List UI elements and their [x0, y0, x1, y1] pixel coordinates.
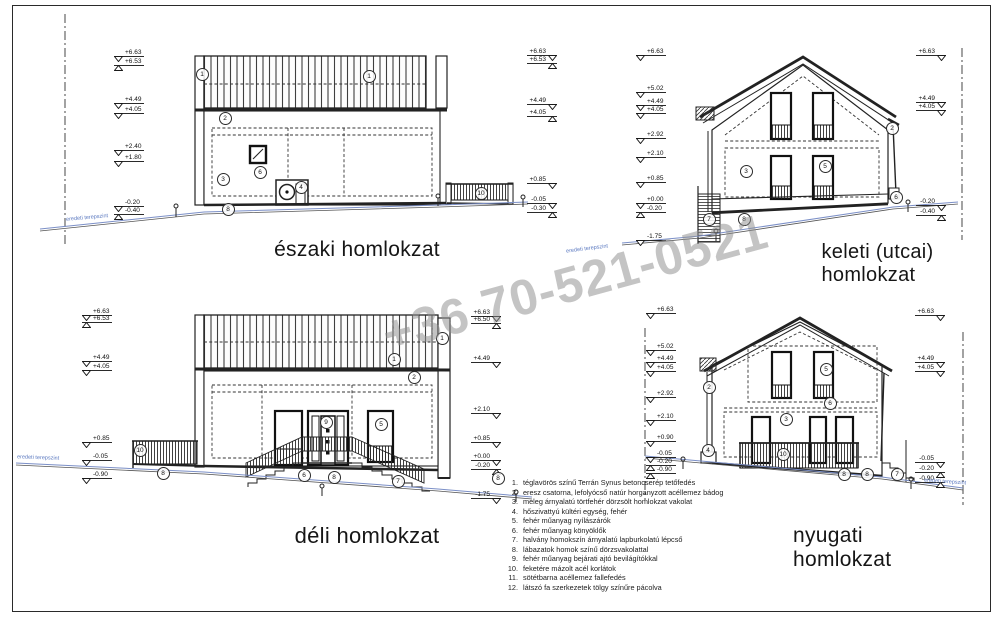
legend-item: 7.halvány homokszín árnyalatú lapburkola… — [503, 535, 723, 545]
eszaki-elevation-title: északi homlokzat — [274, 238, 440, 262]
legend-item-text: fehér műanyag bejárati ajtó bevilágítókk… — [523, 554, 658, 564]
level-triangle-icon — [936, 315, 945, 321]
level-marker: -0.20 — [916, 196, 946, 206]
level-triangle-icon — [636, 240, 645, 246]
level-marker: +4.05 — [527, 107, 557, 117]
level-value: +6.53 — [530, 56, 546, 63]
legend-item-number: 6. — [503, 526, 518, 536]
legend-item-text: fehér műanyag könyöklők — [523, 526, 606, 536]
level-value: +4.49 — [918, 355, 934, 362]
level-value: +4.05 — [93, 363, 109, 370]
level-marker: +2.10 — [636, 148, 666, 158]
level-value: -0.30 — [531, 205, 546, 212]
level-value: +6.63 — [919, 48, 935, 55]
level-marker: -1.75 — [636, 231, 666, 241]
level-value: +5.02 — [657, 343, 673, 350]
level-marker: -0.40 — [114, 205, 144, 215]
level-marker: +4.05 — [916, 101, 946, 111]
level-value: +1.80 — [125, 154, 141, 161]
level-marker: +6.53 — [114, 56, 144, 66]
level-value: +6.63 — [657, 306, 673, 313]
level-marker: -1.75 — [471, 489, 501, 499]
legend-item: 2.eresz csatorna, lefolyócső natúr horga… — [503, 488, 723, 498]
level-marker: +1.80 — [114, 152, 144, 162]
level-marker: +2.92 — [636, 129, 666, 139]
legend-item-number: 11. — [503, 573, 518, 583]
level-marker: +0.85 — [471, 433, 501, 443]
legend-item-number: 2. — [503, 488, 518, 498]
level-triangle-icon — [82, 322, 91, 328]
legend-item: 4.hőszivattyú kültéri egység, fehér — [503, 507, 723, 517]
legend-item: 1.téglavörös színű Terrán Synus betoncse… — [503, 478, 723, 488]
level-triangle-icon — [636, 138, 645, 144]
level-value: +2.10 — [647, 150, 663, 157]
level-marker: +0.90 — [646, 432, 676, 442]
keleti-elevation-title: keleti (utcai) homlokzat — [822, 241, 941, 287]
deli-elevation-drawing — [132, 315, 450, 491]
level-marker: +5.02 — [636, 83, 666, 93]
legend-item-number: 10. — [503, 564, 518, 574]
level-marker: +6.63 — [915, 306, 945, 316]
level-marker: +0.85 — [636, 173, 666, 183]
level-value: +6.50 — [474, 316, 490, 323]
level-value: +2.10 — [657, 413, 673, 420]
level-value: -0.20 — [647, 205, 662, 212]
level-triangle-icon — [646, 313, 655, 319]
level-triangle-icon — [936, 371, 945, 377]
level-marker: -0.20 — [915, 463, 945, 473]
level-value: +0.00 — [647, 196, 663, 203]
level-triangle-icon — [114, 214, 123, 220]
level-triangle-icon — [646, 371, 655, 377]
legend-item-number: 12. — [503, 583, 518, 593]
level-triangle-icon — [937, 110, 946, 116]
level-value: +0.00 — [474, 453, 490, 460]
level-triangle-icon — [492, 442, 501, 448]
level-marker: -0.30 — [527, 203, 557, 213]
level-triangle-icon — [646, 397, 655, 403]
legend-item-text: meleg árnyalatú törtfehér dörzsölt homlo… — [523, 497, 692, 507]
level-triangle-icon — [937, 215, 946, 221]
level-value: -1.75 — [647, 233, 662, 240]
legend-item-number: 8. — [503, 545, 518, 555]
level-marker: -0.05 — [82, 451, 112, 461]
level-triangle-icon — [82, 460, 91, 466]
level-marker: -0.40 — [916, 206, 946, 216]
level-marker: +2.40 — [114, 141, 144, 151]
level-marker: -0.90 — [646, 464, 676, 474]
legend-item: 9.fehér műanyag bejárati ajtó bevilágító… — [503, 554, 723, 564]
legend-item-number: 9. — [503, 554, 518, 564]
level-triangle-icon — [492, 323, 501, 329]
level-marker: +4.49 — [527, 95, 557, 105]
level-marker: -0.20 — [471, 460, 501, 470]
level-triangle-icon — [492, 469, 501, 475]
level-triangle-icon — [548, 212, 557, 218]
level-triangle-icon — [548, 116, 557, 122]
legend-item-text: hőszivattyú kültéri egység, fehér — [523, 507, 627, 517]
level-value: +4.05 — [657, 364, 673, 371]
level-triangle-icon — [636, 113, 645, 119]
level-marker: +4.49 — [471, 353, 501, 363]
level-value: -0.40 — [920, 208, 935, 215]
level-marker: +2.92 — [646, 388, 676, 398]
level-value: +0.85 — [93, 435, 109, 442]
level-value: +6.63 — [647, 48, 663, 55]
level-marker: +4.49 — [114, 94, 144, 104]
level-value: +0.85 — [474, 435, 490, 442]
legend-item-number: 1. — [503, 478, 518, 488]
legend-item-text: halvány homokszín árnyalatú lapburkolatú… — [523, 535, 682, 545]
level-value: +6.63 — [918, 308, 934, 315]
level-value: +2.92 — [657, 390, 673, 397]
level-triangle-icon — [636, 182, 645, 188]
level-value: +5.02 — [647, 85, 663, 92]
level-triangle-icon — [492, 413, 501, 419]
level-marker: -0.05 — [915, 453, 945, 463]
level-value: +4.05 — [125, 106, 141, 113]
level-triangle-icon — [492, 362, 501, 368]
legend-item: 11.sötétbarna acéllemez fallefedés — [503, 573, 723, 583]
level-triangle-icon — [114, 161, 123, 167]
level-value: -0.05 — [531, 196, 546, 203]
legend-item-number: 4. — [503, 507, 518, 517]
level-triangle-icon — [646, 441, 655, 447]
legend-item: 6.fehér műanyag könyöklők — [503, 526, 723, 536]
level-value: +4.05 — [919, 103, 935, 110]
level-triangle-icon — [82, 478, 91, 484]
level-triangle-icon — [82, 442, 91, 448]
level-marker: +4.05 — [82, 361, 112, 371]
legend-item-text: sötétbarna acéllemez fallefedés — [523, 573, 626, 583]
level-marker: -0.90 — [82, 469, 112, 479]
level-value: +4.49 — [125, 96, 141, 103]
level-value: +2.10 — [474, 406, 490, 413]
legend-item-text: feketére mázolt acél korlátok — [523, 564, 616, 574]
legend-item: 3.meleg árnyalatú törtfehér dörzsölt hom… — [503, 497, 723, 507]
level-value: -0.20 — [920, 198, 935, 205]
architectural-drawing-sheet: .ln{stroke:#222;fill:none} .dash{stroke:… — [0, 0, 1000, 619]
level-value: +2.92 — [647, 131, 663, 138]
level-triangle-icon — [636, 212, 645, 218]
level-marker: +2.10 — [646, 411, 676, 421]
level-marker: +6.63 — [916, 46, 946, 56]
level-triangle-icon — [492, 498, 501, 504]
level-marker: +4.05 — [114, 104, 144, 114]
level-marker: +4.05 — [646, 362, 676, 372]
level-triangle-icon — [636, 157, 645, 163]
level-value: +6.63 — [125, 49, 141, 56]
level-value: +0.90 — [657, 434, 673, 441]
nyugati-elevation-title: nyugati homlokzat — [793, 524, 931, 572]
level-marker: +0.85 — [527, 174, 557, 184]
legend-item: 8.lábazatok homok színű dörzsvakolattal — [503, 545, 723, 555]
legend-item-number: 3. — [503, 497, 518, 507]
level-value: +2.40 — [125, 143, 141, 150]
level-value: -0.90 — [93, 471, 108, 478]
level-value: +4.49 — [657, 355, 673, 362]
level-marker: +6.53 — [527, 54, 557, 64]
deli-elevation-title: déli homlokzat — [295, 523, 440, 549]
level-value: +4.05 — [647, 106, 663, 113]
level-value: +0.85 — [530, 176, 546, 183]
level-value: +6.53 — [125, 58, 141, 65]
level-value: +0.85 — [647, 175, 663, 182]
materials-legend: 1.téglavörös színű Terrán Synus betoncse… — [503, 478, 723, 593]
level-triangle-icon — [114, 113, 123, 119]
level-value: -0.20 — [919, 465, 934, 472]
level-value: -0.20 — [475, 462, 490, 469]
level-value: -0.90 — [657, 466, 672, 473]
legend-item-text: látszó fa szerkezetek tölgy színűre páco… — [523, 583, 662, 593]
legend-item: 5.fehér műanyag nyílászárók — [503, 516, 723, 526]
legend-item-text: lábazatok homok színű dörzsvakolattal — [523, 545, 648, 555]
level-triangle-icon — [548, 63, 557, 69]
legend-item: 10.feketére mázolt acél korlátok — [503, 564, 723, 574]
level-marker: +6.63 — [636, 46, 666, 56]
level-value: +4.49 — [474, 355, 490, 362]
level-marker: +4.05 — [915, 362, 945, 372]
level-marker: +4.05 — [636, 104, 666, 114]
level-marker: +0.85 — [82, 433, 112, 443]
level-value: +4.49 — [530, 97, 546, 104]
level-triangle-icon — [114, 65, 123, 71]
level-value: +4.05 — [918, 364, 934, 371]
level-marker: +2.10 — [471, 404, 501, 414]
level-value: -1.75 — [475, 491, 490, 498]
legend-item-text: téglavörös színű Terrán Synus betoncseré… — [523, 478, 695, 488]
level-triangle-icon — [82, 370, 91, 376]
level-triangle-icon — [636, 55, 645, 61]
level-value: +4.49 — [93, 354, 109, 361]
level-marker: +6.63 — [646, 304, 676, 314]
level-value: +6.53 — [93, 315, 109, 322]
level-value: -0.05 — [93, 453, 108, 460]
level-marker: +6.50 — [471, 314, 501, 324]
level-triangle-icon — [646, 420, 655, 426]
legend-item: 12.látszó fa szerkezetek tölgy színűre p… — [503, 583, 723, 593]
legend-item-number: 5. — [503, 516, 518, 526]
legend-item-number: 7. — [503, 535, 518, 545]
level-marker: -0.20 — [636, 203, 666, 213]
legend-item-text: eresz csatorna, lefolyócső natúr horgany… — [523, 488, 723, 498]
level-triangle-icon — [937, 55, 946, 61]
level-marker: +6.53 — [82, 313, 112, 323]
legend-item-text: fehér műanyag nyílászárók — [523, 516, 611, 526]
level-marker: +5.02 — [646, 341, 676, 351]
level-triangle-icon — [548, 183, 557, 189]
level-value: -0.40 — [125, 207, 140, 214]
level-value: +4.05 — [530, 109, 546, 116]
level-value: -0.05 — [919, 455, 934, 462]
